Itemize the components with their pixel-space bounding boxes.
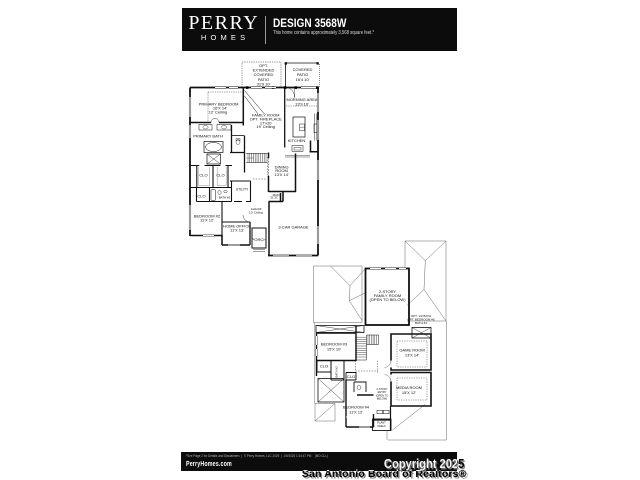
svg-text:12' Ceiling: 12' Ceiling	[209, 109, 228, 114]
svg-text:CLO: CLO	[216, 173, 224, 178]
svg-text:CLO: CLO	[347, 374, 355, 379]
svg-text:15'X 12': 15'X 12'	[402, 390, 416, 395]
svg-text:15'4 10': 15'4 10'	[296, 77, 310, 82]
svg-text:MUD: MUD	[273, 193, 281, 197]
svg-text:19' Ceiling: 19' Ceiling	[256, 124, 275, 129]
svg-text:CLO: CLO	[199, 173, 207, 178]
svg-text:10' Ceiling: 10' Ceiling	[249, 211, 263, 215]
svg-text:CLO: CLO	[197, 193, 205, 198]
svg-text:3-CAR GARAGE: 3-CAR GARAGE	[278, 225, 309, 230]
svg-text:13'X 14': 13'X 14'	[274, 172, 288, 177]
svg-text:SHELF: SHELF	[377, 424, 386, 428]
svg-text:BATH #3: BATH #3	[335, 366, 339, 378]
svg-text:CLO: CLO	[320, 364, 328, 369]
svg-text:15'X 10': 15'X 10'	[327, 347, 341, 352]
svg-text:BELOW): BELOW)	[377, 397, 387, 401]
svg-text:(OPEN TO BELOW): (OPEN TO BELOW)	[369, 297, 406, 302]
svg-text:UTILITY: UTILITY	[236, 188, 249, 192]
svg-text:PORCH: PORCH	[252, 237, 267, 242]
svg-text:11'X 12': 11'X 12'	[349, 410, 363, 415]
svg-text:BATH #4: BATH #4	[415, 321, 427, 325]
svg-text:BATH #2: BATH #2	[219, 195, 231, 199]
svg-text:11'X 12': 11'X 12'	[200, 218, 214, 223]
svg-text:PRIMARY BATH: PRIMARY BATH	[193, 134, 223, 139]
svg-text:11'X 13': 11'X 13'	[230, 227, 244, 232]
svg-text:KITCHEN: KITCHEN	[288, 138, 306, 143]
svg-text:13'9 10': 13'9 10'	[295, 102, 309, 107]
svg-text:31'9 10': 31'9 10'	[257, 81, 271, 86]
svg-text:PLANT: PLANT	[377, 421, 386, 425]
svg-text:13'X 14': 13'X 14'	[405, 353, 419, 358]
